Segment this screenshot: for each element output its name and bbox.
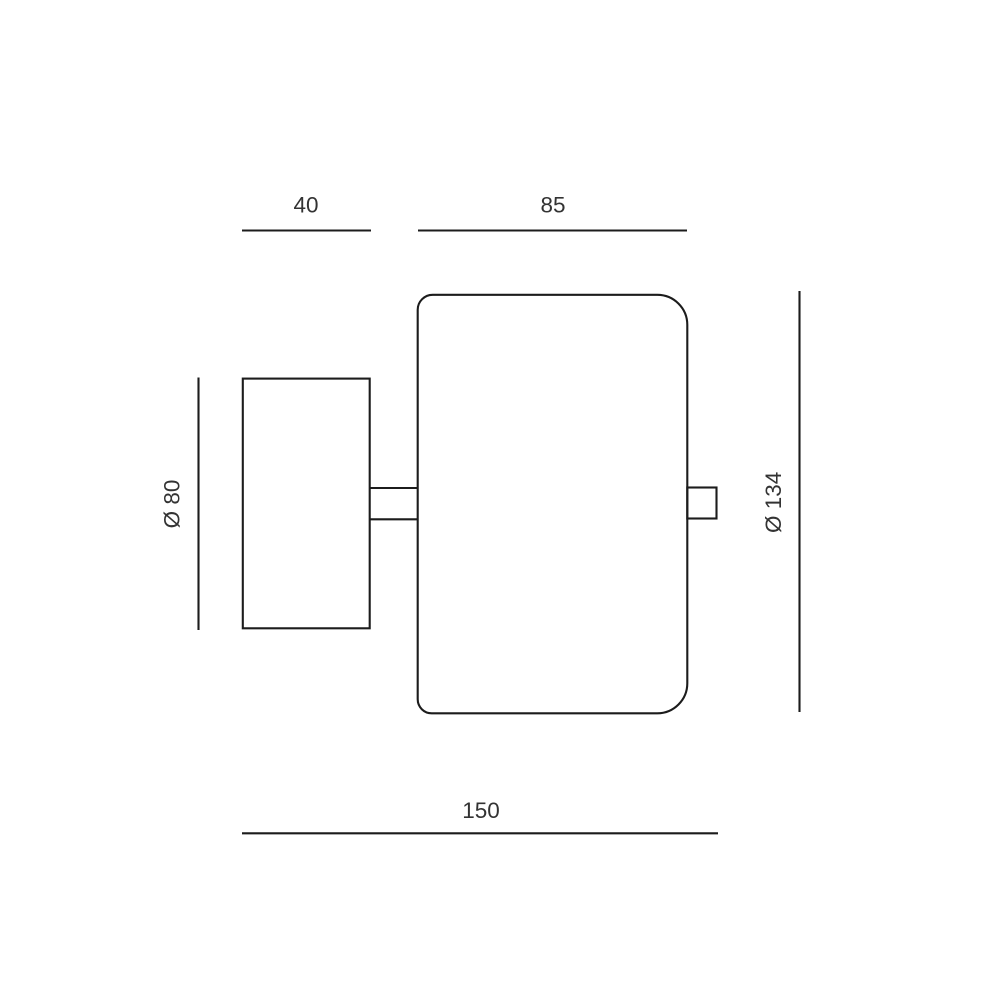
svg-text:Ø 134: Ø 134	[761, 472, 786, 533]
svg-text:150: 150	[462, 798, 500, 823]
svg-text:85: 85	[540, 193, 565, 218]
svg-text:Ø 80: Ø 80	[160, 480, 185, 529]
svg-text:40: 40	[293, 193, 318, 218]
